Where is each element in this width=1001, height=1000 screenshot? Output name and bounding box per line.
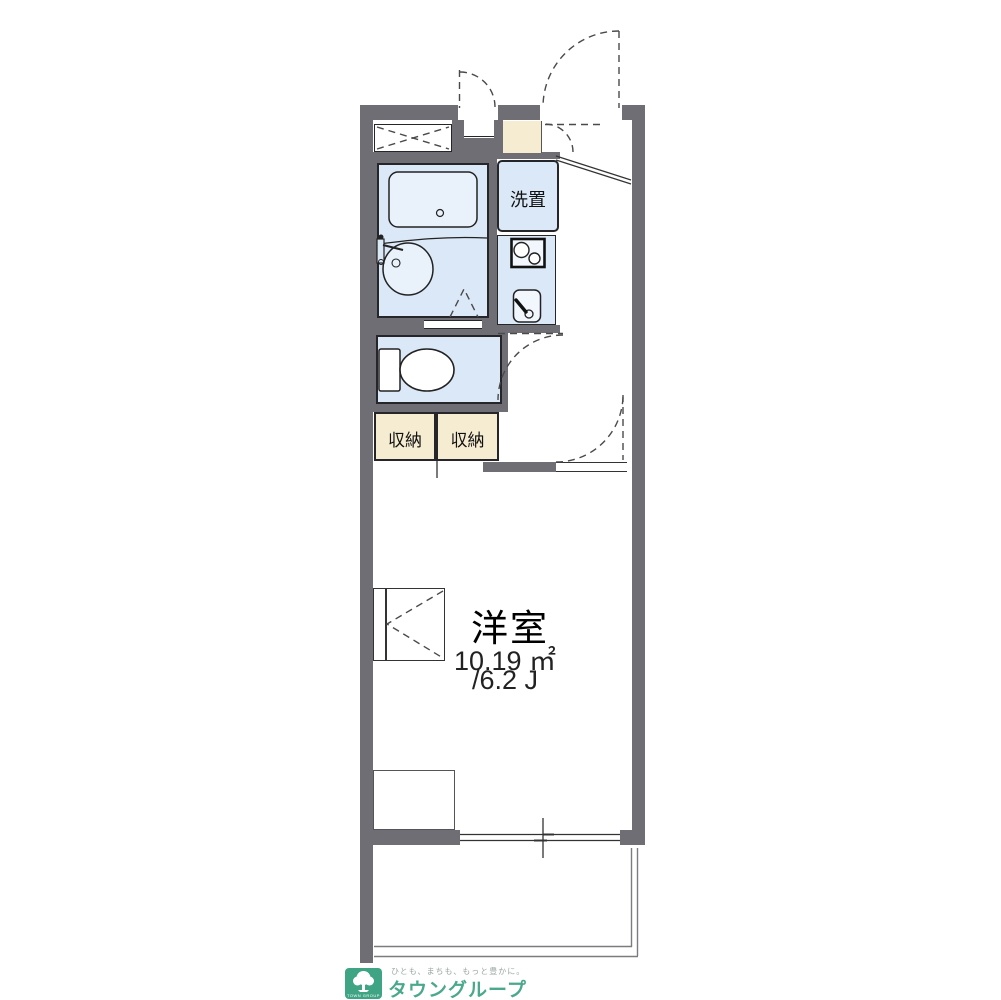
bath-fold-door [450,289,478,317]
genkan-step-edge [556,156,631,184]
genkan-inner-arc [545,124,573,152]
kitchen-sink-icon [514,290,541,322]
entry-door-arc [543,31,619,107]
brand-name: タウングループ [388,975,527,1000]
main-room-door-arc [556,395,623,462]
brand-logo-caption: TOWN GROUP [345,993,382,998]
bath-counter-edge [379,237,487,244]
small-door-arc [460,72,495,107]
toilet-door-arc [498,335,563,400]
brand-logo: TOWN GROUP [345,968,382,999]
balcony-railing [374,848,638,957]
bathtub-icon [389,172,477,227]
toilet-icon [379,349,454,391]
plan-linework [0,0,1001,1000]
floorplan: 洗置 収納 収納 洋室 10.19 ㎡ /6.2 J [0,0,1001,1000]
sliding-window-icon [460,818,620,858]
stove-icon [512,239,545,267]
window-open-indicator [387,591,443,658]
